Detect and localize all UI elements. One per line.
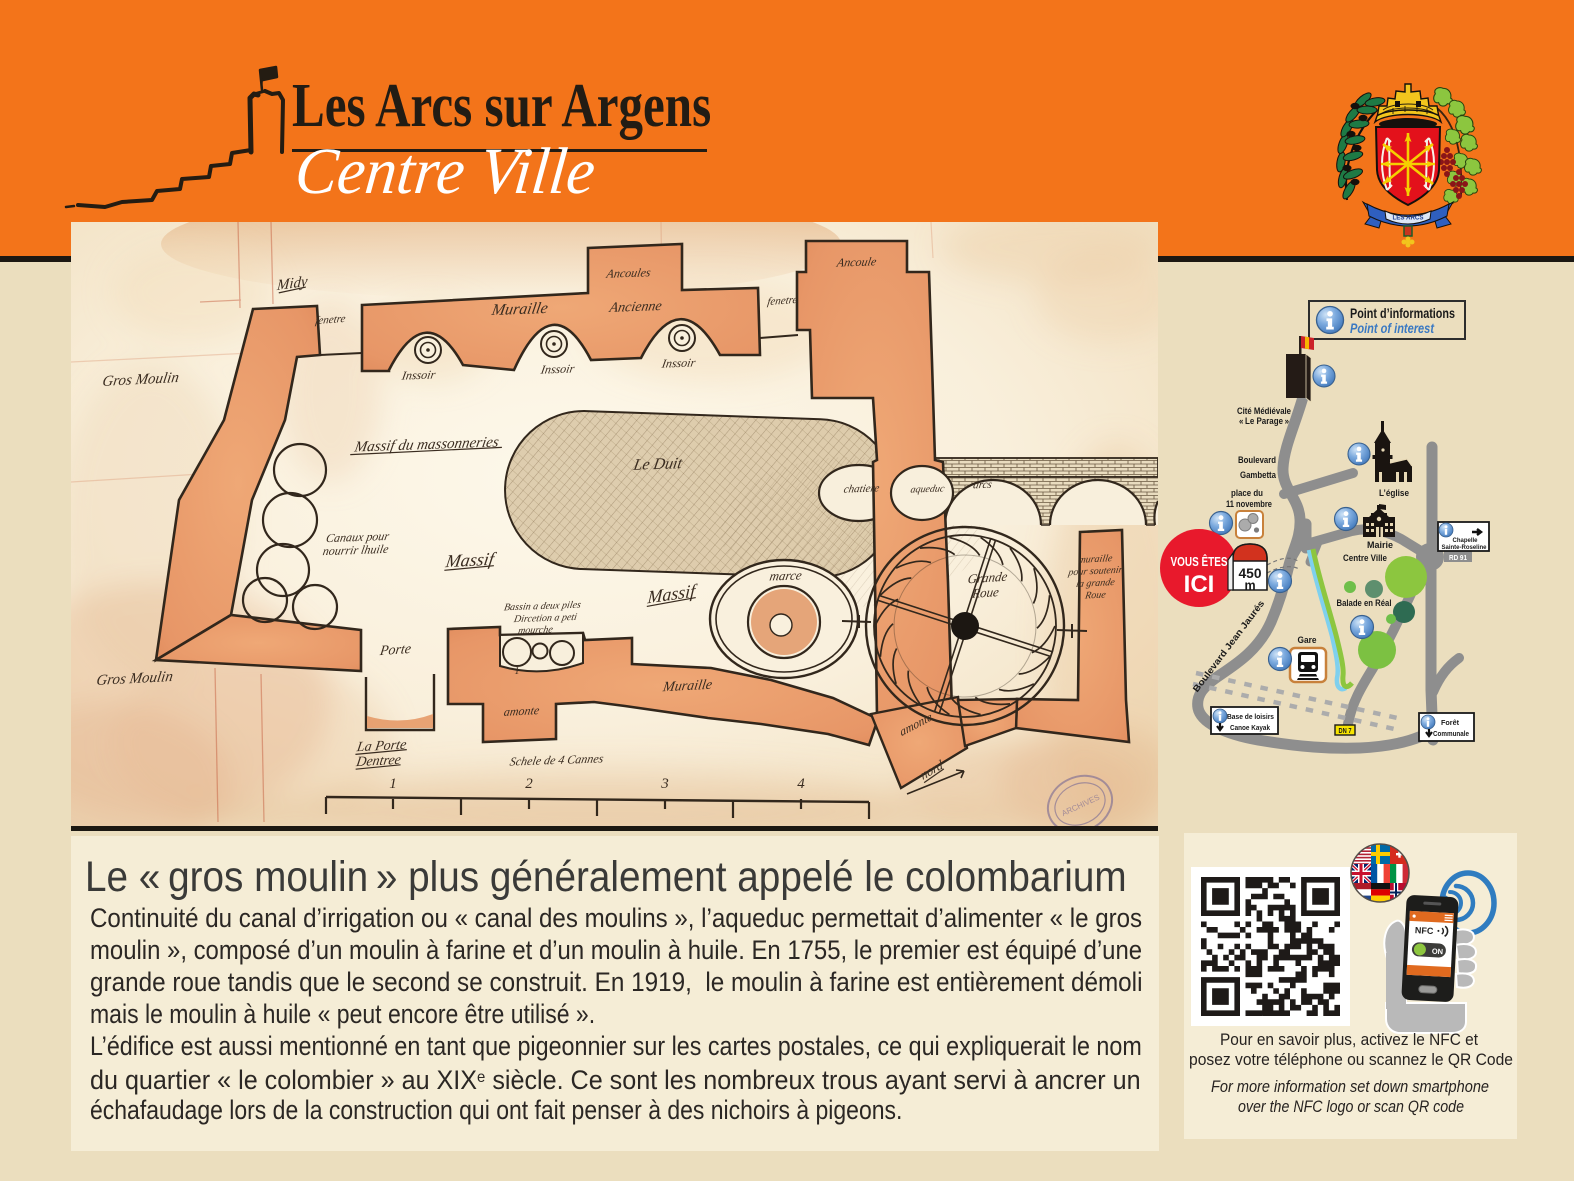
- svg-text:Ancoules: Ancoules: [605, 265, 653, 281]
- svg-text:Point d’informations: Point d’informations: [1350, 306, 1455, 321]
- svg-text:Inssoir: Inssoir: [539, 361, 576, 376]
- svg-text:DN 7: DN 7: [1339, 728, 1352, 735]
- svg-text:Balade en Réal: Balade en Réal: [1337, 598, 1392, 609]
- svg-text:aqueduc: aqueduc: [910, 483, 946, 495]
- svg-text:marce: marce: [769, 567, 804, 583]
- svg-text:ICI: ICI: [1184, 571, 1215, 598]
- svg-text:VOUS ÊTES: VOUS ÊTES: [1171, 554, 1228, 569]
- svg-text:Inssoir: Inssoir: [400, 367, 437, 382]
- svg-text:Canoe Kayak: Canoe Kayak: [1230, 723, 1271, 732]
- svg-text:Mairie: Mairie: [1367, 540, 1393, 551]
- svg-text:11 novembre: 11 novembre: [1226, 499, 1272, 509]
- svg-text:Base de loisirs: Base de loisirs: [1227, 712, 1274, 721]
- svg-text:L’église: L’église: [1379, 488, 1409, 499]
- svg-text:Point of interest: Point of interest: [1350, 321, 1434, 336]
- svg-text:Forêt: Forêt: [1441, 718, 1460, 727]
- svg-text:Ancienne: Ancienne: [607, 298, 663, 316]
- svg-text:Pour en savoir plus, activez l: Pour en savoir plus, activez le NFC et: [1220, 1030, 1478, 1049]
- svg-text:Dircetion a peti: Dircetion a peti: [512, 612, 578, 625]
- svg-text:Boulevard: Boulevard: [1238, 455, 1276, 465]
- svg-text:3: 3: [660, 776, 669, 792]
- svg-text:Centre Ville: Centre Ville: [1343, 553, 1387, 564]
- svg-text:Communale: Communale: [1433, 729, 1469, 738]
- svg-text:LES ARCS: LES ARCS: [1392, 215, 1423, 222]
- svg-text:2: 2: [525, 776, 533, 792]
- svg-text:chatiere: chatiere: [843, 482, 881, 495]
- svg-text:Muraille: Muraille: [661, 677, 713, 696]
- svg-text:nourrir lhuile: nourrir lhuile: [322, 542, 391, 558]
- svg-text:4: 4: [797, 776, 805, 792]
- svg-text:ON: ON: [1432, 947, 1444, 957]
- svg-text:fenetre: fenetre: [767, 294, 799, 308]
- svg-text:posez votre téléphone ou scann: posez votre téléphone ou scannez le QR C…: [1189, 1050, 1513, 1069]
- svg-text:Ancoule: Ancoule: [835, 254, 878, 269]
- svg-text:place du: place du: [1231, 488, 1263, 498]
- svg-text:For more information set down: For more information set down smartphone: [1211, 1078, 1489, 1096]
- svg-text:m: m: [1244, 579, 1255, 593]
- svg-text:NFC: NFC: [1415, 925, 1434, 936]
- svg-text:fenetre: fenetre: [315, 313, 347, 327]
- svg-text:Sainte-Roseline: Sainte-Roseline: [1442, 544, 1487, 551]
- svg-text:Gare: Gare: [1298, 635, 1317, 646]
- svg-text:Roue: Roue: [1083, 589, 1107, 601]
- svg-text:amonte: amonte: [503, 703, 541, 719]
- svg-text:mourche: mourche: [517, 624, 554, 636]
- svg-text:Gambetta: Gambetta: [1240, 470, 1277, 480]
- svg-text:RD 91: RD 91: [1449, 555, 1467, 562]
- svg-text:Cité Médiévale: Cité Médiévale: [1237, 406, 1291, 416]
- svg-text:1: 1: [515, 666, 520, 677]
- svg-text:« Le Parage »: « Le Parage »: [1239, 416, 1289, 426]
- svg-text:Roue: Roue: [970, 584, 1000, 601]
- svg-text:1: 1: [389, 776, 397, 792]
- svg-text:Inssoir: Inssoir: [660, 355, 697, 370]
- svg-text:arcs: arcs: [972, 479, 993, 492]
- svg-text:Porte: Porte: [378, 641, 412, 659]
- svg-text:Chapelle: Chapelle: [1453, 537, 1478, 544]
- svg-text:muraille: muraille: [1078, 553, 1114, 566]
- svg-text:Le Duit: Le Duit: [631, 455, 684, 474]
- svg-text:la grande: la grande: [1075, 577, 1116, 590]
- svg-text:Muraille: Muraille: [489, 300, 549, 319]
- svg-text:Grande: Grande: [967, 569, 1009, 587]
- svg-text:over the NFC logo or scan QR c: over the NFC logo or scan QR code: [1238, 1098, 1464, 1116]
